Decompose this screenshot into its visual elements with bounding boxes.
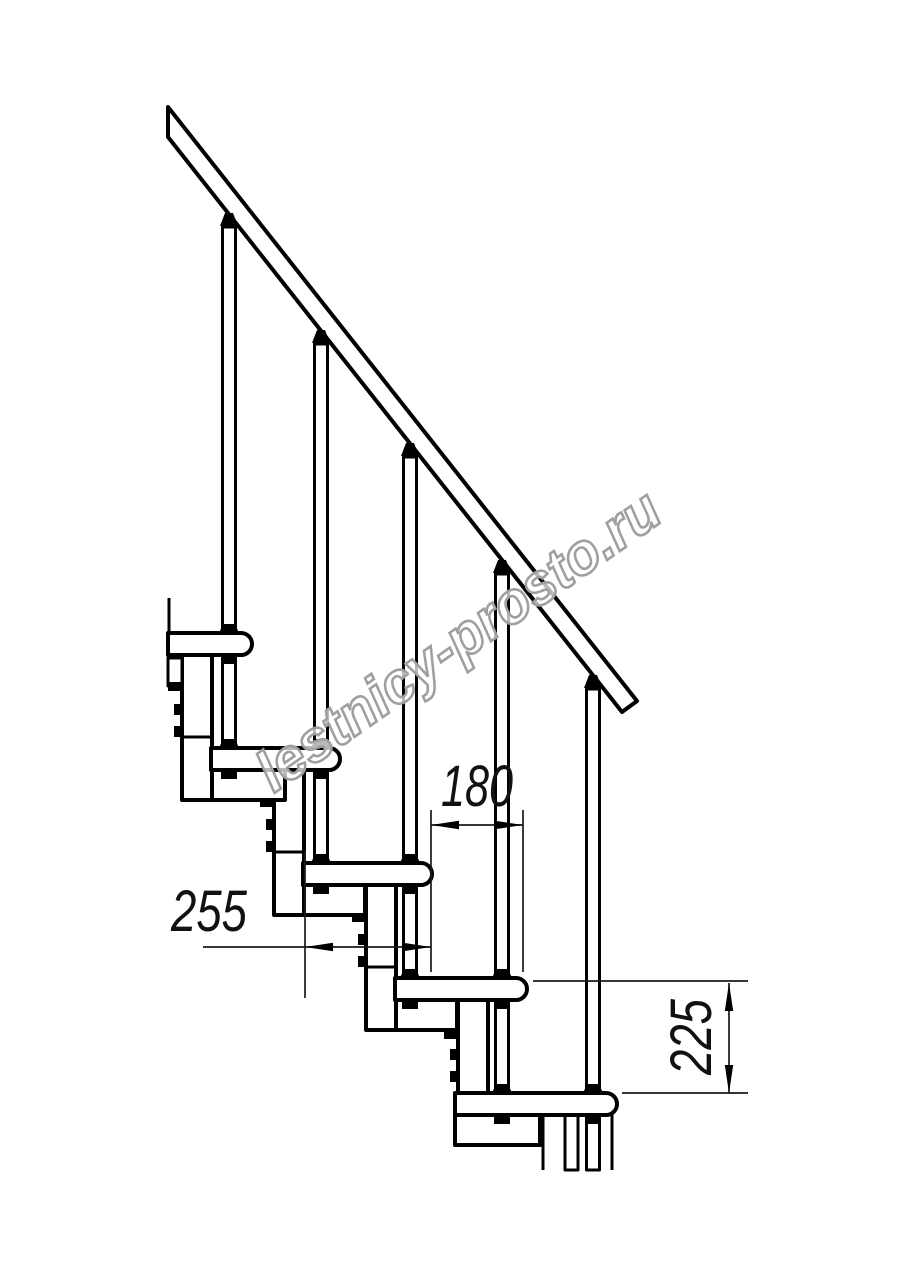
arrow-left-icon	[305, 943, 333, 951]
arrow-left-icon	[431, 821, 459, 829]
staircase-drawing: 180 255 225 lestnicy-prosto.ru	[0, 0, 914, 1280]
tread-5	[455, 1093, 617, 1115]
dimension-rise-label: 225	[659, 998, 724, 1075]
tread-4	[395, 978, 527, 1000]
arrow-up-icon	[725, 983, 733, 1011]
support-column-1	[182, 655, 212, 800]
dimension-rise-225: 225	[533, 981, 748, 1093]
baluster-2	[315, 344, 328, 863]
lower-structure-cut-lines	[543, 1115, 612, 1170]
tread-3	[303, 863, 432, 885]
tread-1	[168, 633, 252, 655]
baluster-1	[223, 227, 236, 748]
arrow-down-icon	[725, 1065, 733, 1093]
support-column-3	[366, 885, 396, 1030]
dimension-depth-label: 255	[170, 879, 247, 944]
baluster-3	[404, 457, 417, 978]
dimension-run-label: 180	[441, 754, 513, 819]
support-column-4	[458, 1000, 488, 1093]
